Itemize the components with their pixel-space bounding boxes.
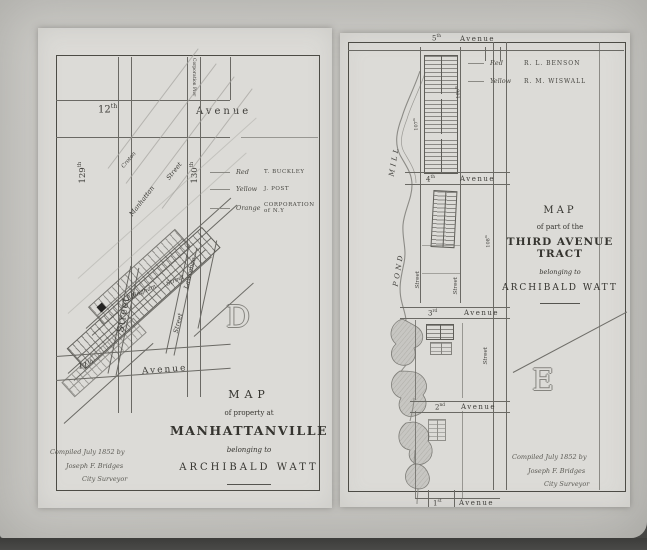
cross-street-gap (425, 134, 457, 139)
legend-row: Red T. BUCKLEY (210, 168, 318, 176)
plate-letter-e: E (532, 363, 554, 398)
cross-street-stub (422, 245, 460, 246)
street-line (462, 323, 463, 398)
color-swatch-line (210, 172, 230, 173)
street-line-129 (131, 57, 132, 413)
lot-column (424, 55, 458, 174)
street-line (462, 411, 463, 498)
legend-owner-name: T. BUCKLEY (264, 169, 305, 175)
street-108-label: 108th (485, 235, 492, 248)
avenue-3-label: 3rd (428, 310, 437, 317)
title-rule (227, 484, 271, 485)
legend-color-label: Orange (236, 204, 264, 212)
avenue-line (56, 137, 230, 138)
legend-color-label: Yellow (236, 185, 264, 193)
street-label: Street (484, 347, 490, 364)
compiled-line2: Joseph F. Bridges (528, 465, 589, 479)
paper-background: 12th Avenue 129th 130th Corporation Pier (0, 0, 647, 538)
cross-street-gap (425, 94, 457, 99)
avenue-2-name: Avenue (461, 404, 496, 411)
manhattanville-map-sheet: 12th Avenue 129th 130th Corporation Pier (38, 28, 332, 508)
street-107-label: 107th (413, 118, 420, 131)
street-line (454, 490, 455, 507)
avenue-line (241, 137, 318, 138)
street-line (493, 42, 494, 490)
compiler-note: Compiled July 1852 by Joseph F. Bridges … (512, 451, 589, 492)
avenue-12-label: 12th (98, 104, 117, 115)
legend-color-label: Red (490, 59, 524, 67)
title-belonging: belonging to (166, 446, 332, 454)
legend: Red T. BUCKLEY Yellow J. POST Orange COR… (210, 168, 318, 223)
compiled-line3: City Surveyor (544, 478, 589, 492)
lot-column (431, 190, 458, 248)
legend-color-label: Red (236, 168, 264, 176)
title-place-name: THIRD AVENUE TRACT (498, 236, 622, 260)
plate-letter-d: D (226, 300, 250, 335)
avenue-2-label: 2nd (435, 404, 445, 411)
compiled-line1: Compiled July 1852 by (50, 446, 127, 460)
legend-owner-name: R. L. BENSON (524, 60, 580, 67)
avenue-line (400, 318, 510, 319)
avenue-line (56, 100, 230, 101)
compiler-note: Compiled July 1852 by Joseph F. Bridges … (50, 446, 127, 487)
cross-street-stub (422, 273, 460, 274)
map-title-block: MAP of part of the THIRD AVENUE TRACT be… (498, 205, 622, 304)
legend-owner-name: R. M. WISWALL (524, 78, 586, 85)
third-avenue-tract-map-sheet: 5th Avenue 106th 107th 4th Avenu (340, 33, 630, 507)
legend-owner-name: CORPORATION of N.Y (264, 202, 318, 214)
compiled-line1: Compiled July 1852 by (512, 451, 589, 465)
avenue-line (405, 172, 510, 173)
street-line (428, 490, 429, 507)
title-owner-name: ARCHIBALD WATT (166, 462, 332, 473)
legend-row: Yellow J. POST (210, 185, 318, 193)
title-subline: of property at (166, 409, 332, 417)
street-line (415, 411, 416, 498)
legend-row: Orange CORPORATION of N.Y (210, 202, 318, 214)
title-owner-name: ARCHIBALD WATT (498, 283, 622, 293)
avenue-5-name: Avenue (460, 36, 495, 43)
legend-row: Red R. L. BENSON (468, 59, 608, 67)
lot-column (426, 324, 454, 340)
legend-owner-name: J. POST (264, 186, 289, 192)
street-129-label: 129th (78, 162, 87, 184)
avenue-4-name: Avenue (460, 176, 495, 183)
color-swatch-line (210, 208, 230, 209)
compiled-line3: City Surveyor (82, 473, 127, 487)
color-swatch-line (210, 189, 230, 190)
title-belonging: belonging to (498, 268, 622, 276)
street-106-label: 106th (455, 86, 462, 99)
avenue-line (405, 184, 510, 185)
photo-background-edge (0, 538, 647, 550)
lot-column (428, 419, 446, 441)
avenue-line (410, 401, 510, 402)
avenue-line (348, 50, 624, 51)
title-subline: of part of the (498, 223, 622, 231)
street-line (420, 47, 421, 303)
street-label: Street (454, 277, 460, 294)
avenue-4-label: 4th (426, 176, 435, 183)
title-map-word: MAP (166, 388, 332, 401)
avenue-1-name: Avenue (459, 500, 494, 507)
street-line (415, 320, 416, 400)
legend: Red R. L. BENSON Yellow R. M. WISWALL (468, 59, 608, 94)
avenue-12-number: 12 (98, 104, 111, 115)
avenue-5-label: 5th (432, 35, 441, 42)
title-place-name: MANHATTANVILLE (166, 423, 332, 438)
color-swatch-line (468, 81, 484, 82)
legend-color-label: Yellow (490, 77, 524, 85)
legend-row: Yellow R. M. WISWALL (468, 77, 608, 85)
title-rule (540, 303, 580, 304)
avenue-3-name: Avenue (464, 310, 499, 317)
map-title-block: MAP of property at MANHATTANVILLE belong… (166, 388, 332, 485)
color-swatch-line (468, 63, 484, 64)
avenue-line (410, 412, 510, 413)
lot-column (430, 342, 452, 355)
avenue-1-label: 1st (433, 500, 441, 507)
compiled-line2: Joseph F. Bridges (66, 460, 127, 474)
street-label: Street (416, 271, 422, 288)
avenue-line (400, 307, 510, 308)
title-map-word: MAP (498, 205, 622, 216)
